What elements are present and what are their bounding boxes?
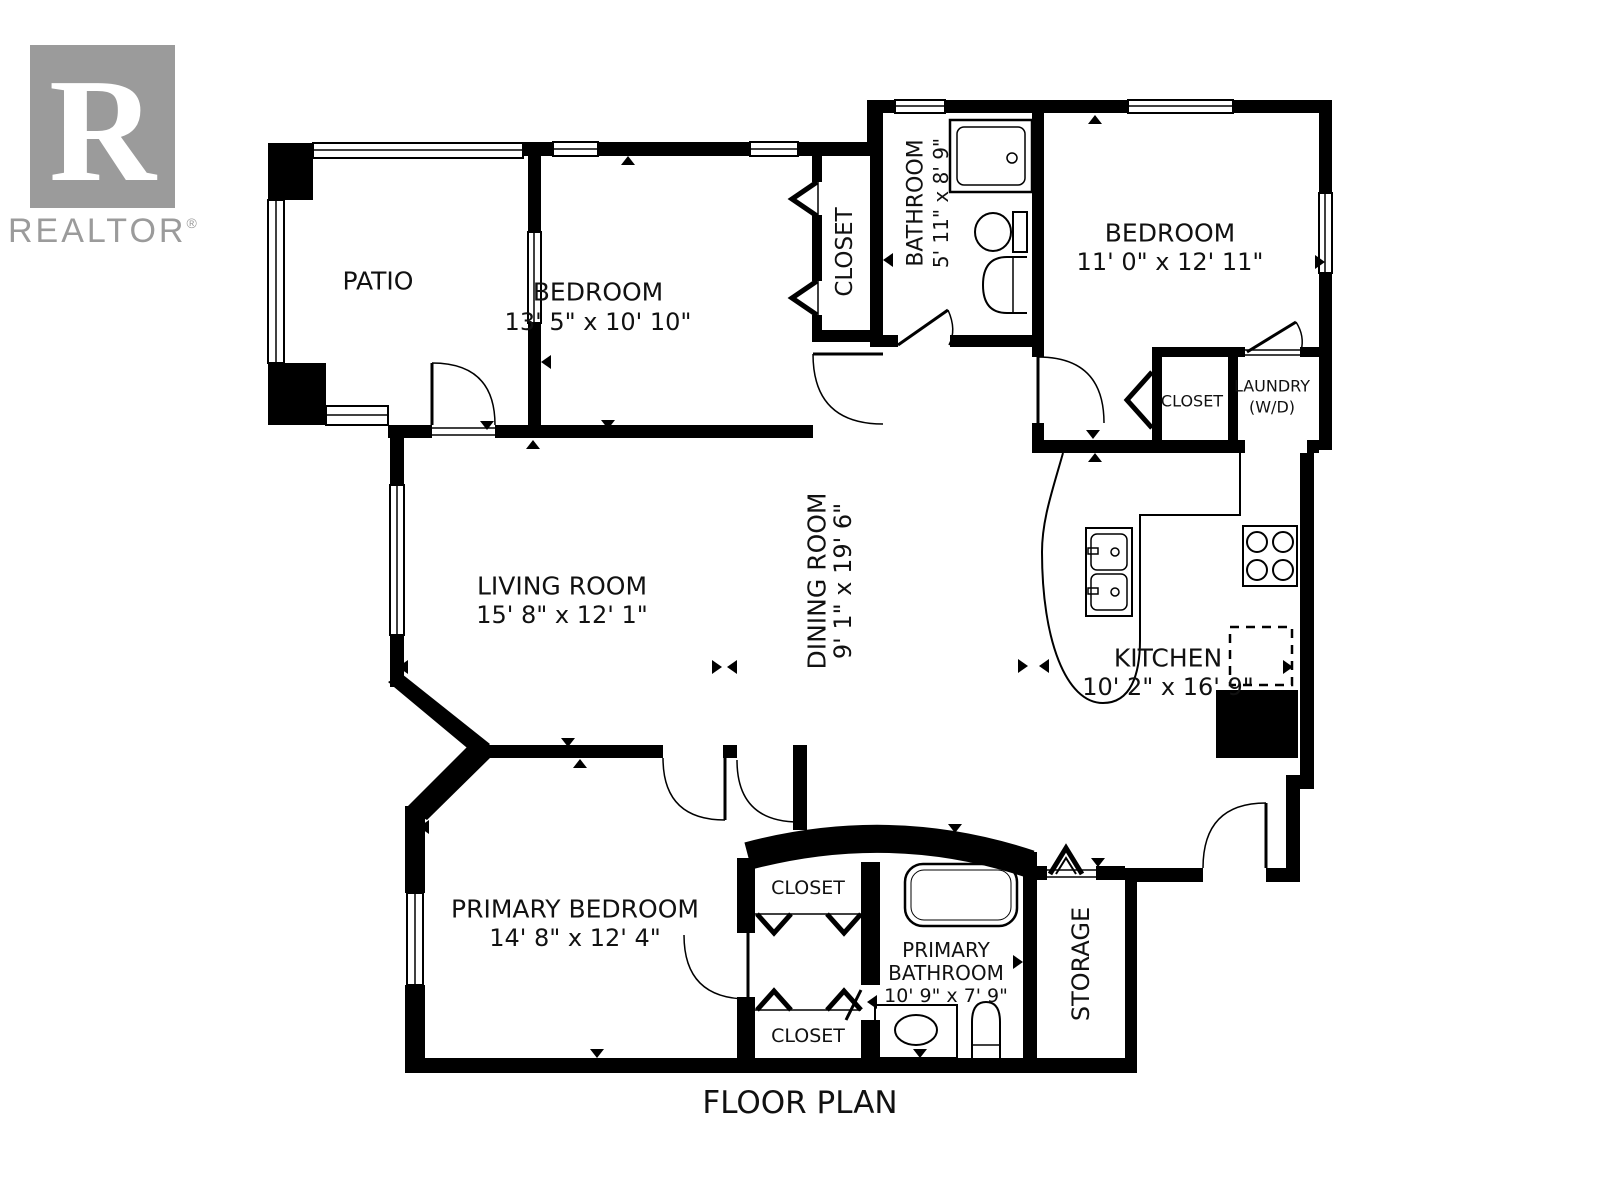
floor-plan-svg: PATIO BEDROOM 13' 5" x 10' 10" CLOSET BA… xyxy=(0,0,1600,1200)
room-dims-living-room: 15' 8" x 12' 1" xyxy=(476,601,648,629)
room-label-living-room: LIVING ROOM xyxy=(477,572,647,601)
kitchen-sink xyxy=(1086,528,1132,616)
laundry-door-arc xyxy=(1296,322,1302,351)
realtor-logo-block: R xyxy=(30,45,175,208)
shower-pan xyxy=(957,127,1025,185)
registered-trademark: ® xyxy=(186,215,196,231)
primary-sink xyxy=(895,1015,937,1045)
bedroom2-door-arc xyxy=(1038,357,1104,423)
room-label-bedroom1: BEDROOM xyxy=(533,278,664,307)
room-label-primary-bedroom: PRIMARY BEDROOM xyxy=(451,895,699,924)
toilet-tank xyxy=(1013,212,1027,252)
room-labels: PATIO BEDROOM 13' 5" x 10' 10" CLOSET BA… xyxy=(343,138,1311,1121)
toilet xyxy=(975,213,1011,251)
bathroom-door-leaf xyxy=(898,310,948,345)
realtor-logo: R REALTOR® xyxy=(8,20,228,250)
plan-title: FLOOR PLAN xyxy=(702,1085,897,1121)
room-dims-dining-room: 9' 1" x 19' 6" xyxy=(829,503,857,659)
entry-door-arc xyxy=(1203,803,1266,868)
bathtub-inner xyxy=(911,870,1011,920)
room-dims-primary-bathroom: 10' 9" x 7' 9" xyxy=(884,985,1008,1007)
patio-door-arc xyxy=(432,363,495,425)
room-dims-bedroom1: 13' 5" x 10' 10" xyxy=(505,308,692,336)
room-label-storage: STORAGE xyxy=(1067,907,1095,1021)
realtor-wordmark: REALTOR® xyxy=(8,212,228,251)
room-dims-primary-bedroom: 14' 8" x 12' 4" xyxy=(489,924,661,952)
room-label-primary-bathroom-line2: BATHROOM xyxy=(888,961,1004,985)
primary-toilet xyxy=(972,1002,1000,1058)
floor-plan-page: R REALTOR® xyxy=(0,0,1600,1200)
room-dims-kitchen: 10' 2" x 16' 9" xyxy=(1082,673,1254,701)
bedroom1-door-arc xyxy=(813,354,883,424)
room-label-primary-bathroom-line1: PRIMARY xyxy=(902,938,990,962)
laundry-door-leaf xyxy=(1247,322,1296,352)
room-label-bedroom1-closet: CLOSET xyxy=(832,206,858,296)
primary-door-arc xyxy=(684,935,748,999)
bathtub xyxy=(905,864,1017,926)
room-dims-bedroom2: 11' 0" x 12' 11" xyxy=(1077,248,1264,276)
realtor-logo-r-icon: R xyxy=(30,51,175,211)
realtor-wordmark-text: REALTOR xyxy=(8,212,186,250)
sink xyxy=(983,257,1027,313)
shower-drain xyxy=(1007,153,1017,163)
room-label-laundry: LAUNDRY xyxy=(1234,377,1310,396)
room-label-patio: PATIO xyxy=(343,267,414,296)
room-label-primary-closet-lower: CLOSET xyxy=(771,1025,845,1047)
room-label-kitchen: KITCHEN xyxy=(1114,644,1222,673)
room-label-primary-closet-upper: CLOSET xyxy=(771,877,845,899)
room-sub-laundry: (W/D) xyxy=(1249,398,1295,417)
room-label-bedroom2-closet: CLOSET xyxy=(1161,392,1223,411)
hall-door2-arc xyxy=(737,760,799,822)
hall-door-arc xyxy=(663,758,725,820)
room-label-dining-room: DINING ROOM xyxy=(803,492,832,669)
room-label-bedroom2: BEDROOM xyxy=(1105,219,1236,248)
shower xyxy=(950,120,1032,192)
room-dims-bathroom: 5' 11" x 8' 9" xyxy=(929,138,953,268)
room-label-bathroom: BATHROOM xyxy=(904,139,929,266)
curved-wall xyxy=(748,839,1030,864)
